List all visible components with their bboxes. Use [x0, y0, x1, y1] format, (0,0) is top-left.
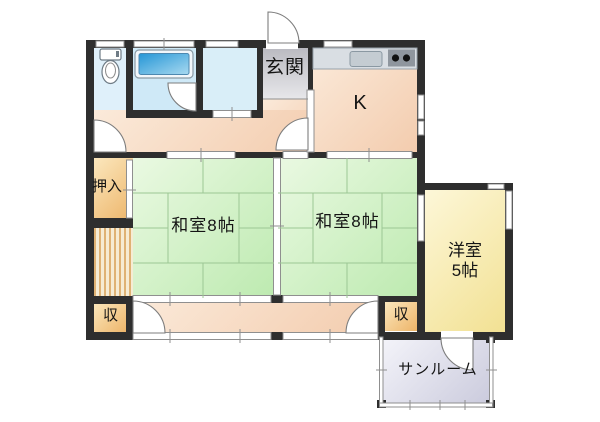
room-veranda: [133, 298, 378, 332]
yoshitsu-label-line1: 洋室: [448, 241, 482, 261]
entrance-door-arc: [268, 12, 299, 43]
room-bathroom: [133, 47, 196, 112]
washitsu-left-label: 和室8帖: [133, 214, 274, 238]
room-toilet: [94, 47, 126, 110]
washitsu-right-label: 和室8帖: [278, 210, 417, 234]
kitchen-label: K: [340, 90, 380, 116]
room-washroom: [203, 47, 257, 112]
sunroom-label: サンルーム: [388, 360, 488, 380]
genkan-label: 玄関: [259, 55, 311, 81]
room-hallway: [94, 110, 313, 158]
floorplan: 玄関 K 和室8帖 和室8帖 洋室 5帖 押入 収 収 サンルーム: [0, 0, 600, 422]
yoshitsu-label: 洋室 5帖: [425, 240, 505, 282]
storage-right-label: 収: [385, 305, 417, 325]
storage-left-label: 収: [94, 306, 127, 326]
area-engawa-steps: [94, 228, 133, 298]
yoshitsu-label-line2: 5帖: [452, 261, 478, 281]
oshiire-label: 押入: [84, 178, 130, 196]
